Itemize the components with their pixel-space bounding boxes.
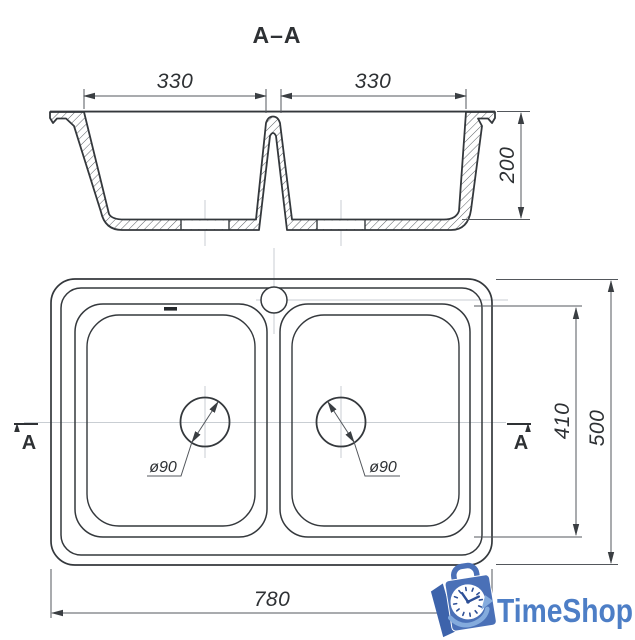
plan-view: ø90 ø90 A A 410: [14, 279, 618, 618]
sink-cross-section: [50, 112, 495, 230]
section-marker-right-label: A: [514, 432, 528, 454]
sink-rim-inner-edge: [61, 288, 482, 555]
bowl-left-opening: [75, 304, 267, 537]
drain-diameter-right-label: ø90: [369, 459, 397, 476]
sink-technical-drawing-page: A–A 330: [0, 0, 635, 640]
drain-diameter-left-label: ø90: [149, 459, 177, 476]
sink-technical-drawing: A–A 330: [0, 0, 635, 640]
overflow-slot: [164, 307, 177, 311]
drain-opening-right: [317, 220, 365, 231]
shopping-bag-icon: [428, 562, 498, 638]
timeshop-logo: TimeShop: [428, 562, 633, 638]
logo-text: TimeShop: [497, 592, 633, 629]
dimension-bowl-right-width: 330: [281, 70, 466, 113]
section-marker-left-label: A: [22, 432, 36, 454]
section-title: A–A: [252, 22, 301, 48]
dim-bowl-left-width: 330: [157, 70, 194, 93]
section-view: A–A 330: [50, 22, 530, 334]
drain-opening-left: [181, 220, 229, 231]
dimension-bowl-left-width: 330: [84, 70, 266, 113]
dim-overall-width: 500: [586, 410, 609, 447]
dim-depth: 200: [496, 147, 519, 185]
dim-bowl-right-width: 330: [355, 70, 392, 93]
faucet-hole: [261, 287, 287, 313]
bowl-right-opening: [280, 304, 470, 537]
dimension-overall-length: 780: [51, 569, 492, 618]
section-marker-left: A: [14, 423, 38, 454]
section-marker-right: A: [507, 423, 531, 454]
dim-bowls-length: 410: [551, 403, 574, 440]
dimension-bowls-length: 410: [474, 306, 582, 537]
dim-overall-length: 780: [254, 588, 291, 611]
